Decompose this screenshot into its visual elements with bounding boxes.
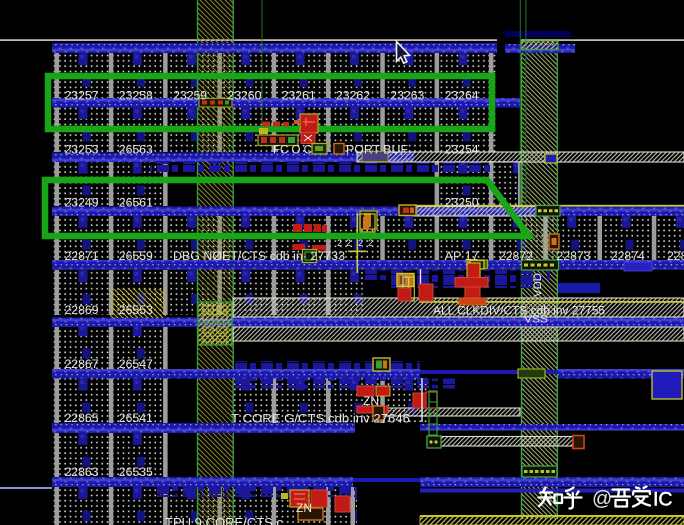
svg-text:22874: 22874 — [611, 249, 645, 263]
svg-text:IC: IC — [653, 489, 673, 511]
svg-text:2: 2 — [337, 238, 342, 248]
svg-text:23261: 23261 — [282, 89, 316, 103]
svg-text:26535: 26535 — [119, 465, 153, 479]
svg-text:ZN: ZN — [296, 501, 312, 515]
svg-text:23260: 23260 — [227, 89, 261, 103]
svg-text:26561: 26561 — [119, 196, 153, 210]
svg-text:ZN: ZN — [363, 394, 379, 408]
svg-text:DBG NØET/CTS cdb in· 27733: DBG NØET/CTS cdb in· 27733 — [173, 251, 345, 263]
svg-text:26553: 26553 — [119, 303, 153, 317]
svg-text:22865: 22865 — [65, 411, 99, 425]
svg-text:2: 2 — [346, 238, 351, 248]
svg-text:23253: 23253 — [65, 143, 99, 157]
svg-text:23257: 23257 — [65, 89, 99, 103]
svg-text:22869: 22869 — [65, 303, 99, 317]
svg-text:22873: 22873 — [557, 249, 591, 263]
svg-text:22863: 22863 — [65, 465, 99, 479]
svg-text:PORT BUF: PORT BUF — [346, 143, 408, 157]
svg-text:26541: 26541 — [119, 411, 153, 425]
svg-text:23250: 23250 — [445, 196, 479, 210]
svg-text:23249: 23249 — [65, 196, 99, 210]
svg-text:23264: 23264 — [445, 89, 479, 103]
svg-text:23262: 23262 — [336, 89, 370, 103]
svg-text:22871: 22871 — [65, 249, 99, 263]
svg-text:22875: 22875 — [667, 249, 684, 263]
svg-text:22872: 22872 — [499, 249, 533, 263]
svg-text:23259: 23259 — [173, 89, 207, 103]
svg-text:AP 17: AP 17 — [445, 249, 479, 263]
svg-text:2: 2 — [368, 238, 373, 248]
svg-text:ALL CLKDIV/CTS cdb inv 27755: ALL CLKDIV/CTS cdb inv 27755 — [433, 306, 605, 318]
svg-text:2: 2 — [358, 238, 363, 248]
svg-text:FC O C: FC O C — [273, 143, 312, 157]
svg-text:26563: 26563 — [119, 143, 153, 157]
svg-text:23263: 23263 — [390, 89, 424, 103]
svg-text:23254: 23254 — [445, 143, 479, 157]
svg-text:VSS: VSS — [524, 314, 548, 326]
svg-text:TPU 9 CORE/CTS c: TPU 9 CORE/CTS c — [165, 516, 283, 525]
svg-text:23258: 23258 — [119, 89, 153, 103]
svg-text:VDD: VDD — [532, 273, 544, 297]
svg-text:22867: 22867 — [65, 357, 99, 371]
svg-text:@: @ — [592, 488, 612, 510]
svg-text:26547: 26547 — [119, 357, 153, 371]
svg-text:T CORE G/CTS cdb inv 27646: T CORE G/CTS cdb inv 27646 — [231, 414, 410, 426]
svg-text:26559: 26559 — [119, 249, 153, 263]
